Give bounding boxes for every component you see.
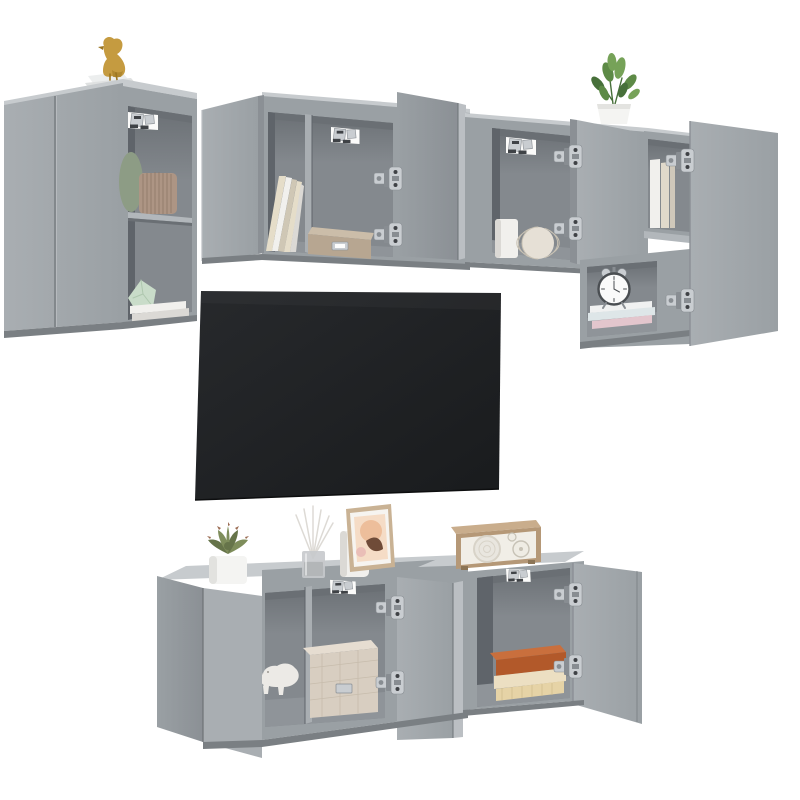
gold-bird-figurine <box>98 37 125 80</box>
product-photo-canvas <box>0 0 800 800</box>
left-cabinet-doors <box>4 83 123 331</box>
middle-cabinet-right-door <box>397 92 466 260</box>
bottom-left-left-door <box>157 576 262 758</box>
tv-wall-unit-scene <box>0 0 800 800</box>
cabinet-bottom-left <box>157 504 486 758</box>
tv <box>195 291 501 500</box>
cabinet-top-middle <box>202 92 470 270</box>
succulent-plant <box>207 522 249 584</box>
plant-leaves <box>589 53 642 102</box>
middle-cabinet-left-door <box>202 95 264 261</box>
tall-cabinet-door <box>690 121 778 346</box>
wall-mount-bracket <box>506 568 531 584</box>
wall-mount-bracket <box>506 137 536 155</box>
retro-radio <box>451 520 541 570</box>
framed-art <box>346 504 395 572</box>
tv-screen <box>195 291 501 500</box>
wall-mount-bracket <box>331 127 360 144</box>
shelf-books <box>650 159 675 228</box>
pleated-vase <box>139 172 177 214</box>
fabric-storage-box <box>303 640 378 718</box>
potted-plant <box>589 53 642 124</box>
right-cabinet-door <box>570 119 643 272</box>
bottom-right-door <box>573 563 642 724</box>
hardcover-book-stack <box>490 645 566 701</box>
wall-mount-bracket <box>330 579 356 595</box>
cabinet-top-left <box>4 37 197 338</box>
wall-mount-bracket <box>128 112 158 130</box>
cabinet-top-right <box>465 53 648 277</box>
white-cylinder-vase <box>495 219 518 258</box>
